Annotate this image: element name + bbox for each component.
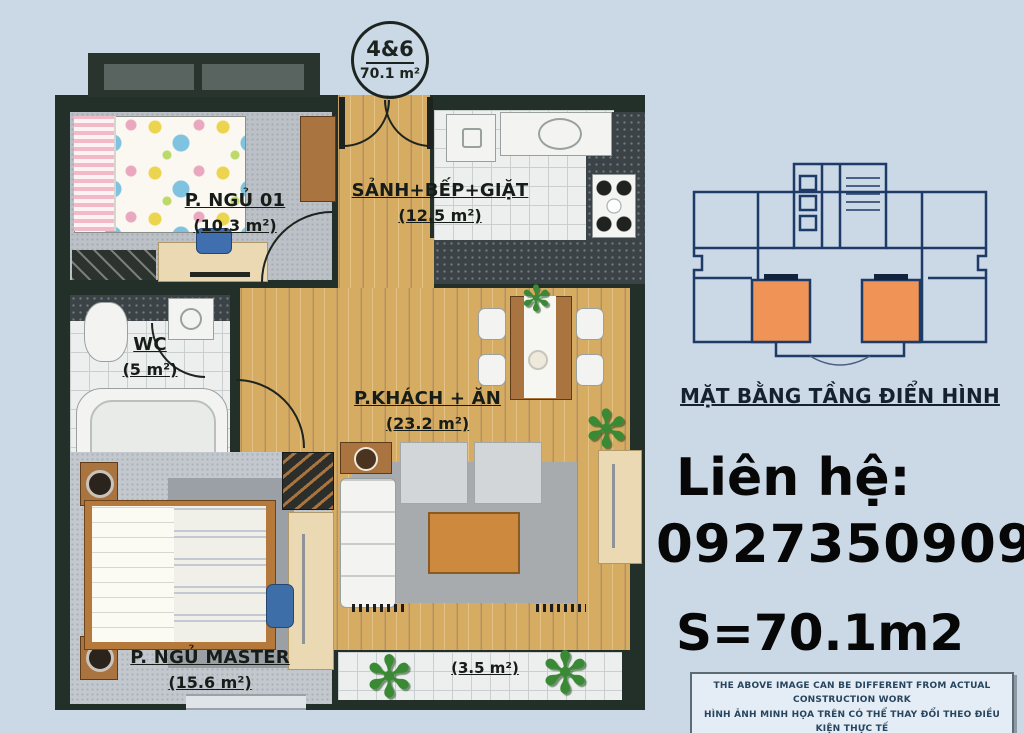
keyplan-rail [874,274,908,280]
room-name: WC [85,332,215,358]
room-label-bedroom-01: P. NGỦ 01 (10.3 m²) [140,188,330,237]
room-label-balcony: (3.5 m²) [425,658,545,680]
room-area: (3.5 m²) [425,658,545,680]
keyplan-stairs [846,178,880,210]
keyplan-arc [810,356,870,365]
door-leaf [339,97,345,149]
contact-phone: 0927350909 [656,514,1024,575]
flyer-canvas: ✻ ✻ ✻ ✻ 4&6 70.1 m² P. NG [0,0,1024,733]
room-name: P. NGỦ 01 [140,188,330,214]
room-name: SẢNH+BẾP+GIẶT [345,178,535,204]
entry-door-arc-right [385,100,431,146]
room-label-hall-kitchen: SẢNH+BẾP+GIẶT (12.5 m²) [345,178,535,227]
disclaimer-line-vi: HÌNH ẢNH MINH HỌA TRÊN CÓ THỂ THAY ĐỔI T… [696,708,1008,733]
unit-badge: 4&6 70.1 m² [351,21,429,99]
keyplan-unit-4 [752,280,810,342]
room-name: P. NGỦ MASTER [110,645,310,671]
typical-floor-keyplan [672,150,1008,378]
entry-door-arc-left [343,100,389,146]
keyplan-rail [764,274,798,280]
contact-heading: Liên hệ: [676,448,910,508]
room-area: (12.5 m²) [345,204,535,227]
room-label-living-dining: P.KHÁCH + ĂN (23.2 m²) [335,386,520,435]
master-door-arc [236,380,304,448]
room-label-master-bedroom: P. NGỦ MASTER (15.6 m²) [110,645,310,694]
room-area: (5 m²) [85,358,215,381]
disclaimer-line-en: THE ABOVE IMAGE CAN BE DIFFERENT FROM AC… [696,679,1008,708]
room-area: (10.3 m²) [140,214,330,237]
disclaimer-box: THE ABOVE IMAGE CAN BE DIFFERENT FROM AC… [690,672,1014,733]
room-label-wc: WC (5 m²) [85,332,215,381]
unit-number: 4&6 [366,38,414,60]
room-area: (15.6 m²) [110,671,310,694]
room-name: P.KHÁCH + ĂN [335,386,520,412]
apartment-size: S=70.1m2 [676,604,964,662]
badge-divider [366,62,414,64]
room-area: (23.2 m²) [335,412,520,435]
keyplan-unit-6 [862,280,920,342]
keyplan-title: MẶT BẰNG TẦNG ĐIỂN HÌNH [672,384,1008,408]
unit-area: 70.1 m² [360,66,420,82]
door-leaf [427,97,433,149]
